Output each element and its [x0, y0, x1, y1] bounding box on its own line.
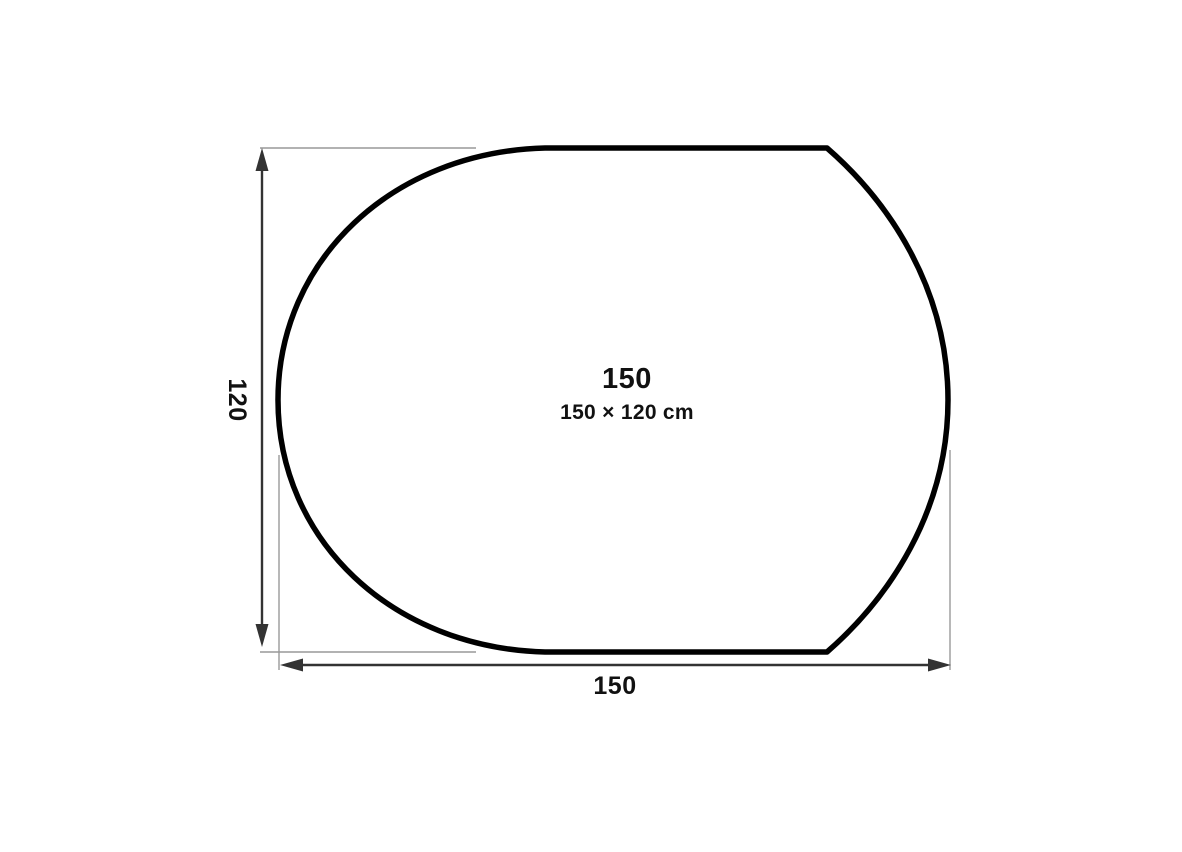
shape-outline [278, 148, 948, 652]
dimension-diagram: 120 150 150 150 × 120 cm [0, 0, 1182, 852]
diagram-canvas: 120 150 150 150 × 120 cm [0, 0, 1182, 852]
arrow-right-icon [928, 659, 951, 672]
height-dimension-label: 120 [223, 378, 251, 421]
arrow-down-icon [256, 624, 269, 647]
width-dimension-label: 150 [593, 672, 636, 700]
arrow-left-icon [280, 659, 303, 672]
arrow-up-icon [256, 148, 269, 171]
size-title: 150 [602, 363, 652, 395]
size-subtitle: 150 × 120 cm [560, 401, 694, 424]
